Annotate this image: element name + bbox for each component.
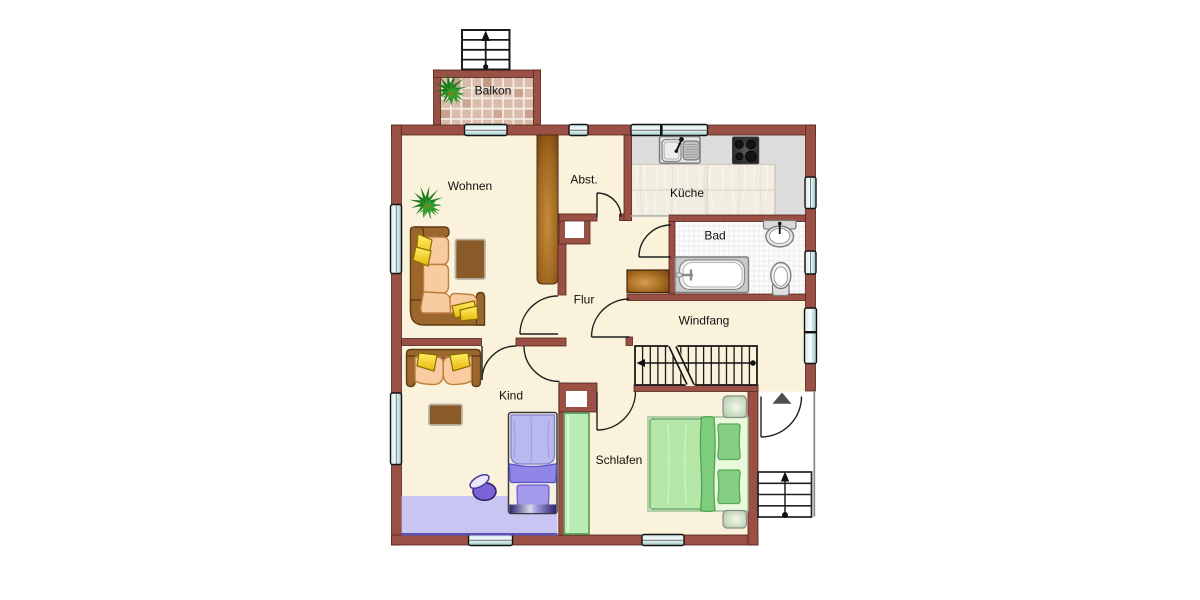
svg-text:Wohnen: Wohnen (448, 179, 492, 193)
svg-text:Abst.: Abst. (570, 173, 597, 187)
svg-text:Kind: Kind (499, 389, 523, 403)
svg-text:Flur: Flur (574, 293, 595, 307)
svg-text:Bad: Bad (704, 229, 725, 243)
svg-text:Schlafen: Schlafen (596, 453, 643, 467)
svg-text:Küche: Küche (670, 186, 704, 200)
svg-text:Windfang: Windfang (679, 314, 730, 328)
svg-text:Balkon: Balkon (475, 84, 512, 98)
